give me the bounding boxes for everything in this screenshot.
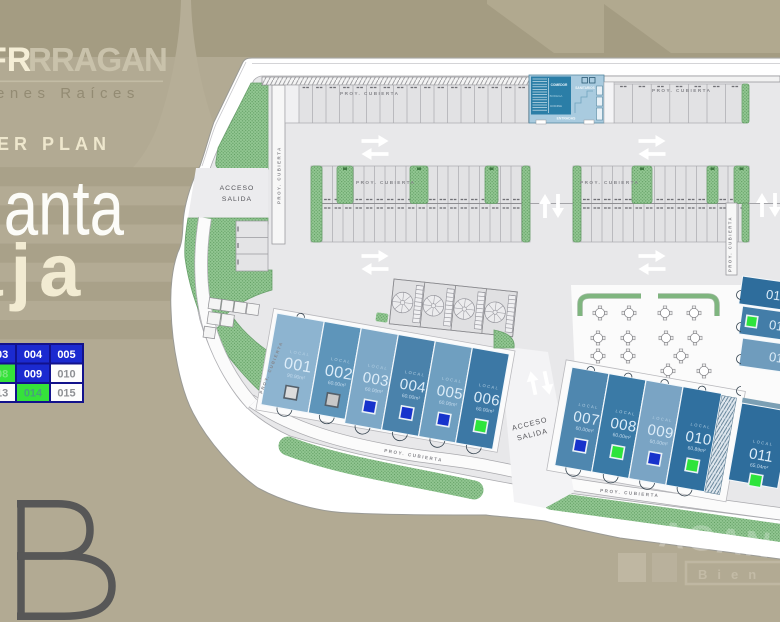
- svg-text:01: 01: [768, 317, 780, 334]
- svg-text:014: 014: [24, 388, 43, 400]
- svg-text:013: 013: [0, 388, 8, 400]
- svg-text:SALIDA: SALIDA: [222, 196, 252, 203]
- svg-text:SANITARIOS: SANITARIOS: [575, 86, 594, 90]
- svg-text:010: 010: [57, 368, 75, 380]
- svg-text:ACCESO: ACCESO: [220, 185, 255, 192]
- svg-text:ENTRADAS: ENTRADAS: [557, 117, 577, 121]
- svg-text:01: 01: [768, 349, 780, 366]
- svg-text:004: 004: [24, 349, 43, 361]
- svg-text:PROY. CUBIERTA: PROY. CUBIERTA: [652, 88, 711, 93]
- svg-text:Baja: Baja: [0, 229, 88, 312]
- svg-text:009: 009: [24, 368, 42, 380]
- svg-text:enes Raíces: enes Raíces: [0, 85, 140, 102]
- svg-text:008: 008: [0, 368, 8, 380]
- svg-text:Bien: Bien: [698, 567, 766, 582]
- svg-text:PROY. CUBIERTA: PROY. CUBIERTA: [340, 91, 399, 96]
- svg-text:BODEGA: BODEGA: [550, 94, 563, 98]
- svg-text:PROY. CUBIERTA: PROY. CUBIERTA: [580, 180, 639, 185]
- svg-text:RRAGAN: RRAGAN: [28, 41, 167, 78]
- svg-text:FR: FR: [0, 41, 31, 79]
- svg-text:003: 003: [0, 349, 8, 361]
- svg-text:COMEDOR: COMEDOR: [551, 83, 568, 87]
- svg-text:015: 015: [57, 388, 75, 400]
- svg-text:ER PLAN: ER PLAN: [0, 134, 111, 154]
- svg-text:PROY. CUBIERTA: PROY. CUBIERTA: [277, 146, 282, 204]
- svg-text:01: 01: [765, 287, 780, 304]
- svg-text:PROY. CUBIERTA: PROY. CUBIERTA: [356, 180, 415, 185]
- svg-text:PROY. CUBIERTA: PROY. CUBIERTA: [728, 216, 733, 272]
- svg-text:COCINA: COCINA: [550, 104, 562, 108]
- svg-text:005: 005: [57, 349, 75, 361]
